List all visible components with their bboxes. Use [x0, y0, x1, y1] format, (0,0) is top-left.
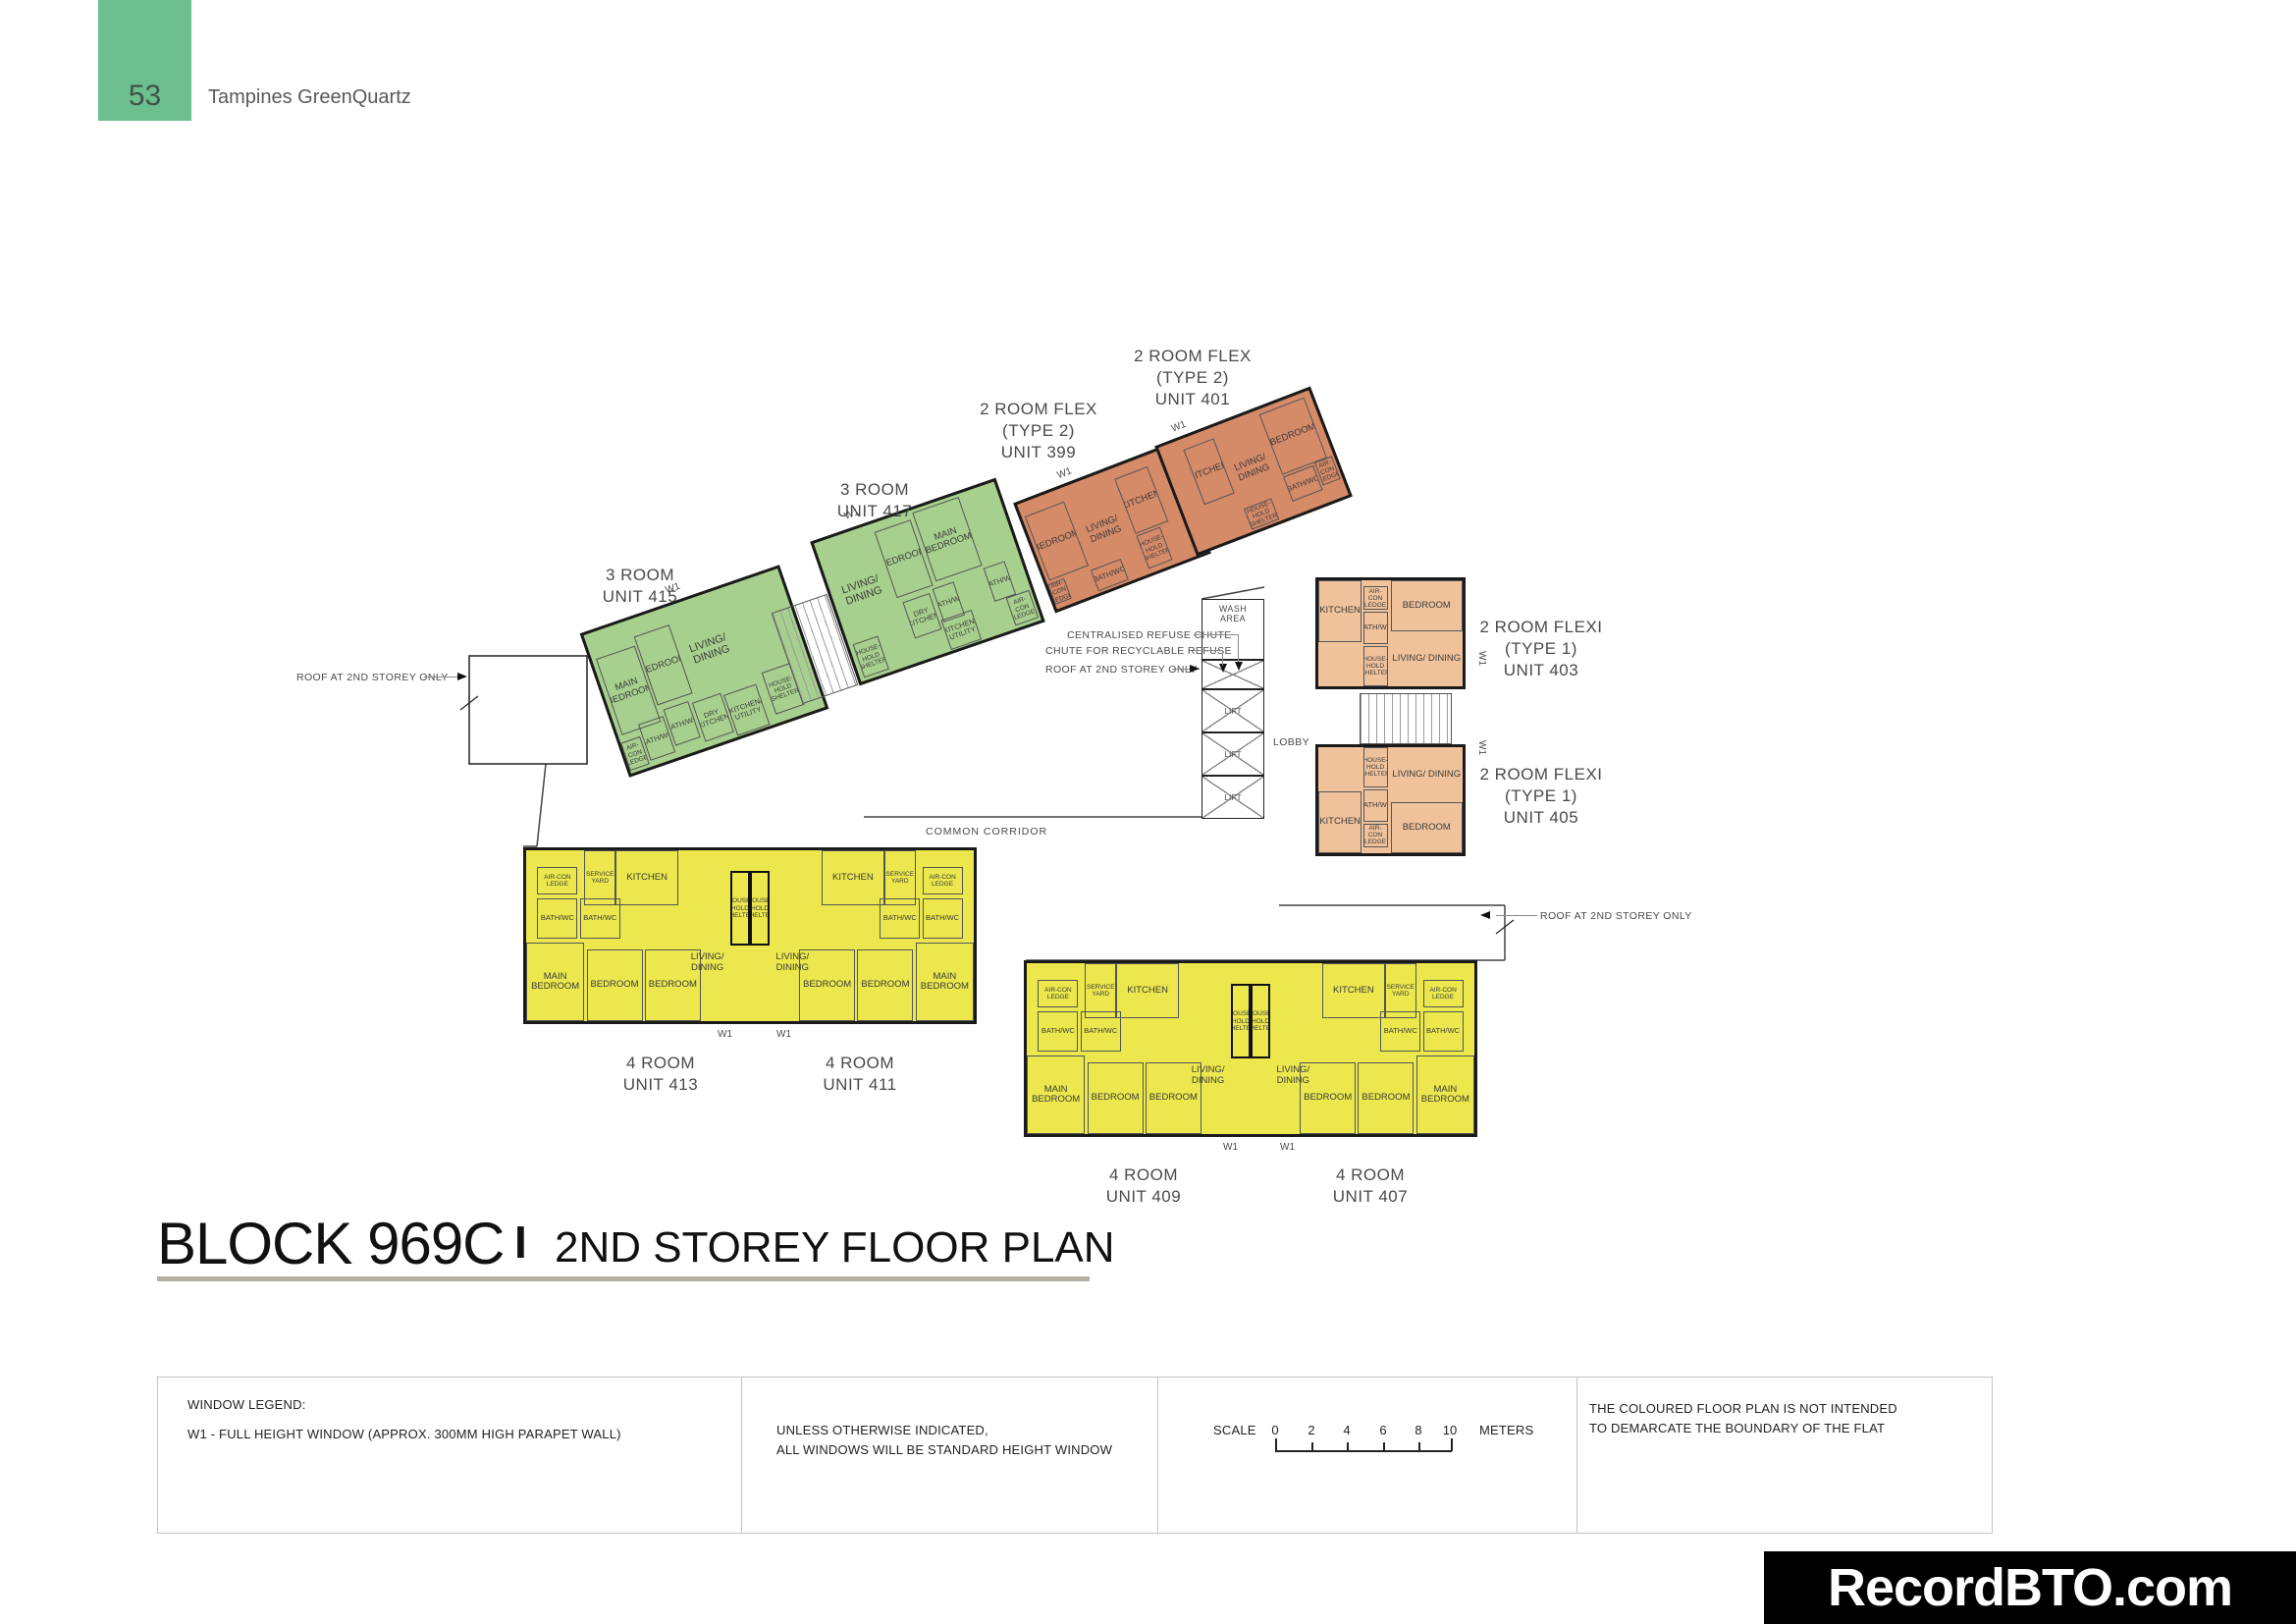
scale-bar-tick: [1451, 1438, 1453, 1451]
room-living-dining: LIVING/ DINING: [678, 936, 736, 991]
room-bath-wc: BATH/WC: [880, 898, 920, 940]
storey-subtitle: 2ND STOREY FLOOR PLAN: [555, 1223, 1115, 1272]
scale-bar-tick: [1383, 1442, 1385, 1451]
leader-line: [1496, 915, 1537, 916]
scale-bar-tick: [1311, 1442, 1313, 1451]
unit-label-403: 2 ROOM FLEXI(TYPE 1)UNIT 403: [1479, 617, 1602, 681]
room-living-dining: LIVING/ DINING: [1179, 1049, 1237, 1104]
room-household-shelter: HOUSE- HOLD SHELTER: [1363, 646, 1388, 686]
room-household-shelter: HOUSE- HOLD SHELTER: [1251, 984, 1270, 1059]
room-aircon-ledge: AIR-CON LEDGE: [1047, 578, 1072, 606]
room-bedroom: BEDROOM: [857, 949, 913, 1021]
unit-label-407: 4 ROOMUNIT 407: [1333, 1164, 1408, 1208]
room-bedroom: BEDROOM: [1391, 580, 1464, 631]
room-bedroom: BEDROOM: [1391, 802, 1464, 853]
scale-label: SCALE: [1213, 1423, 1256, 1437]
unit-label-409: 4 ROOMUNIT 409: [1106, 1164, 1181, 1208]
leader-arrow: [457, 673, 467, 680]
lift-label: LIFT: [1224, 706, 1241, 716]
leader-line: [1238, 634, 1239, 662]
room-aircon-ledge: AIR-CON LEDGE: [537, 867, 577, 894]
room-household-shelter: HOUSE- HOLD SHELTER: [1363, 747, 1388, 787]
room-aircon-ledge: AIR-CON LEDGE: [1363, 824, 1388, 847]
unit-label-415: 3 ROOMUNIT 415: [603, 565, 677, 608]
legend-divider: [1576, 1378, 1577, 1533]
room-bedroom: BEDROOM: [1358, 1062, 1414, 1134]
leader-arrow: [1190, 665, 1200, 673]
unit-label-413: 4 ROOMUNIT 413: [623, 1053, 698, 1096]
scale-tick-0: 0: [1271, 1423, 1278, 1437]
room-main-bedroom: MAIN BEDROOM: [916, 943, 974, 1021]
room-main-bedroom: MAIN BEDROOM: [1027, 1056, 1085, 1134]
room-service-yard: SERVICE YARD: [1085, 963, 1116, 1018]
room-living-dining: LIVING/ DINING: [1391, 631, 1464, 686]
scale-tick-6: 6: [1379, 1423, 1386, 1437]
wash-area-label: WASH AREA: [1208, 604, 1257, 624]
room-bedroom: BEDROOM: [587, 949, 643, 1021]
windows-note-line2: ALL WINDOWS WILL BE STANDARD HEIGHT WIND…: [776, 1442, 1112, 1457]
title-separator: I: [514, 1216, 527, 1269]
lift-box: LIFT: [1201, 689, 1264, 732]
leader-line: [1194, 650, 1223, 651]
room-bath-wc: BATH/WC: [923, 898, 963, 940]
lift-box: LIFT: [1201, 776, 1264, 819]
legend-divider: [1157, 1378, 1158, 1533]
room-bath-wc: BATH/WC: [580, 898, 620, 940]
windows-note-line1: UNLESS OTHERWISE INDICATED,: [776, 1423, 988, 1437]
room-aircon-ledge: AIR-CON LEDGE: [1006, 590, 1040, 625]
project-name: Tampines GreenQuartz: [208, 86, 411, 109]
room-bath-wc: BATH/WC: [1038, 1011, 1078, 1053]
room-bedroom: BEDROOM: [1300, 1062, 1356, 1134]
scale-tick-10: 10: [1443, 1423, 1457, 1437]
block-title: BLOCK 969C: [157, 1210, 505, 1277]
room-service-yard: SERVICE YARD: [1385, 963, 1416, 1018]
unit-label-411: 4 ROOMUNIT 411: [823, 1053, 896, 1096]
room-aircon-ledge: AIR-CON LEDGE: [923, 867, 963, 894]
lift-label: LIFT: [1224, 749, 1241, 759]
room-kitchen: KITCHEN: [1322, 963, 1385, 1018]
lift-box: LIFT: [1201, 732, 1264, 776]
room-household-shelter: HOUSE- HOLD SHELTER: [1136, 526, 1173, 568]
roof-rect-left: [460, 656, 587, 764]
room-kitchen: KITCHEN: [615, 850, 678, 905]
scale-bar-tick: [1418, 1442, 1420, 1451]
refuse-chute-arrow: [1235, 662, 1243, 671]
scale-bar-tick: [1347, 1442, 1349, 1451]
room-bath-wc: BATH/WC: [1363, 612, 1388, 643]
coloured-plan-note-line1: THE COLOURED FLOOR PLAN IS NOT INTENDED: [1589, 1401, 1897, 1416]
window-w1-label: W1: [1280, 1142, 1295, 1153]
scale-bar-tick: [1275, 1438, 1277, 1451]
lift-label: LIFT: [1224, 792, 1241, 802]
page-number: 53: [129, 80, 161, 113]
room-service-yard: SERVICE YARD: [584, 850, 615, 905]
annotation-roof-right: ROOF AT 2ND STOREY ONLY: [1540, 910, 1692, 922]
room-kitchen: KITCHEN: [1318, 791, 1362, 853]
room-kitchen: KITCHEN: [822, 850, 884, 905]
coloured-plan-note-line2: TO DEMARCATE THE BOUNDARY OF THE FLAT: [1589, 1421, 1885, 1435]
window-legend-title: WINDOW LEGEND:: [187, 1397, 306, 1412]
window-w1-label: W1: [718, 1029, 732, 1040]
room-aircon-ledge: AIR-CON LEDGE: [1423, 980, 1464, 1007]
room-household-shelter: HOUSE- HOLD SHELTER: [750, 871, 770, 947]
window-legend-w1: W1 - FULL HEIGHT WINDOW (APPROX. 300MM H…: [187, 1427, 621, 1441]
window-w1-label: W1: [1476, 740, 1487, 755]
room-bath-wc: BATH/WC: [1363, 789, 1388, 821]
room-aircon-ledge: AIR-CON LEDGE: [1038, 980, 1078, 1007]
floor-plan-page: { "page": { "number": "53", "project": "…: [0, 0, 2296, 1624]
room-aircon-ledge: AIR-CON LEDGE: [1363, 586, 1388, 610]
watermark-banner: RecordBTO.com: [1764, 1551, 2296, 1624]
room-service-yard: SERVICE YARD: [884, 850, 916, 905]
page-number-box: 53: [98, 0, 191, 121]
room-household-shelter: HOUSE- HOLD SHELTER: [853, 636, 889, 678]
roof-break-right: [1496, 920, 1514, 934]
room-bath-wc: BATH/WC: [1081, 1011, 1121, 1053]
unit-label-405: 2 ROOM FLEXI(TYPE 1)UNIT 405: [1479, 764, 1602, 829]
legend-divider: [741, 1378, 742, 1533]
room-bath-wc: BATH/WC: [537, 898, 577, 940]
unit-label-401: 2 ROOM FLEX(TYPE 2)UNIT 401: [1134, 346, 1252, 410]
scale-tick-4: 4: [1343, 1423, 1350, 1437]
leader-line: [1194, 634, 1239, 635]
room-kitchen: KITCHEN: [1116, 963, 1179, 1018]
scale-unit: METERS: [1479, 1423, 1533, 1437]
window-w1-label: W1: [776, 1029, 791, 1040]
window-w1-label: W1: [1055, 465, 1073, 481]
unit-pair-409-407: AIR-CON LEDGE SERVICE YARD KITCHEN BATH/…: [1024, 960, 1477, 1137]
room-bedroom: BEDROOM: [799, 949, 855, 1021]
leader-line: [1222, 650, 1223, 666]
unit-label-417: 3 ROOMUNIT 417: [837, 479, 912, 522]
common-corridor-label: COMMON CORRIDOR: [926, 826, 1047, 838]
room-bedroom: BEDROOM: [1088, 1062, 1144, 1134]
room-household-shelter: HOUSE- HOLD SHELTER: [730, 871, 750, 947]
unit-405-block: HOUSE- HOLD SHELTER LIVING/ DINING BATH/…: [1315, 744, 1466, 856]
watermark-text: RecordBTO.com: [1828, 1557, 2232, 1618]
refuse-chute-box: [1201, 660, 1264, 689]
scale-bar: [1275, 1450, 1452, 1452]
unit-pair-413-411: AIR-CON LEDGE SERVICE YARD KITCHEN BATH/…: [523, 847, 977, 1024]
unit-403-block: KITCHEN AIR-CON LEDGE BATH/WC BEDROOM LI…: [1315, 577, 1466, 689]
window-w1-label: W1: [1223, 1142, 1238, 1153]
scale-tick-2: 2: [1308, 1423, 1314, 1437]
room-kitchen: KITCHEN: [1318, 580, 1362, 642]
staircase-peach: [1360, 693, 1452, 744]
room-household-shelter: HOUSE- HOLD SHELTER: [1231, 984, 1251, 1059]
lobby-label: LOBBY: [1273, 736, 1309, 748]
window-w1-label: W1: [1170, 419, 1188, 435]
room-living-dining: LIVING/ DINING: [1391, 747, 1464, 802]
room-main-bedroom: MAIN BEDROOM: [526, 943, 584, 1021]
legend-row: WINDOW LEGEND: W1 - FULL HEIGHT WINDOW (…: [157, 1377, 1993, 1534]
room-bath-wc: BATH/WC: [1380, 1011, 1420, 1053]
unit-label-399: 2 ROOM FLEX(TYPE 2)UNIT 399: [980, 399, 1097, 463]
room-bath-wc: BATH/WC: [1423, 1011, 1464, 1053]
room-main-bedroom: MAIN BEDROOM: [1416, 1056, 1474, 1134]
title-underline: [157, 1276, 1090, 1281]
leader-arrow: [1480, 911, 1490, 919]
scale-tick-8: 8: [1415, 1423, 1421, 1437]
